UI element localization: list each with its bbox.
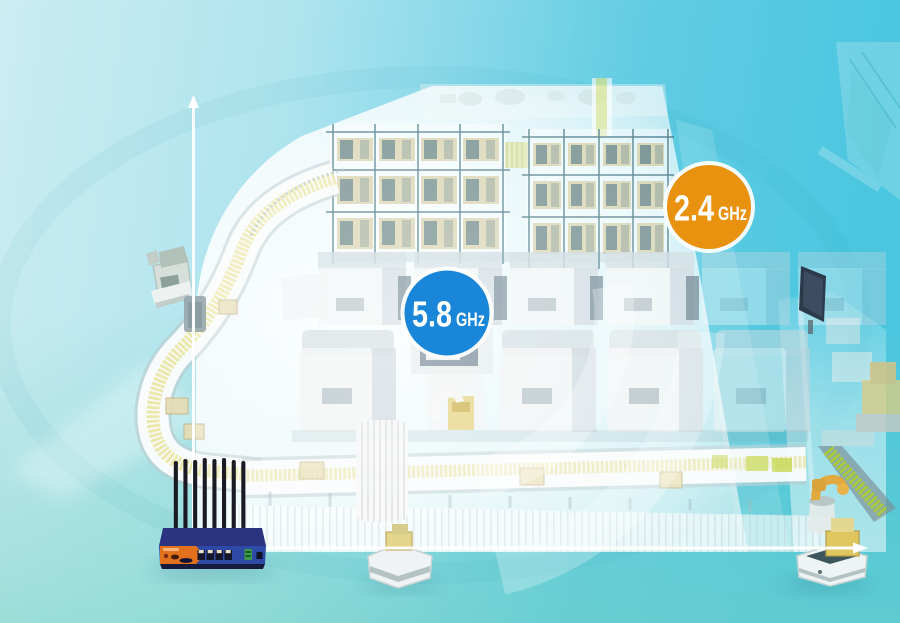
svg-text:2.4: 2.4 [674, 188, 715, 229]
svg-text:5.8: 5.8 [412, 294, 452, 335]
svg-text:GHz: GHz [456, 309, 485, 331]
svg-text:GHz: GHz [718, 203, 747, 225]
